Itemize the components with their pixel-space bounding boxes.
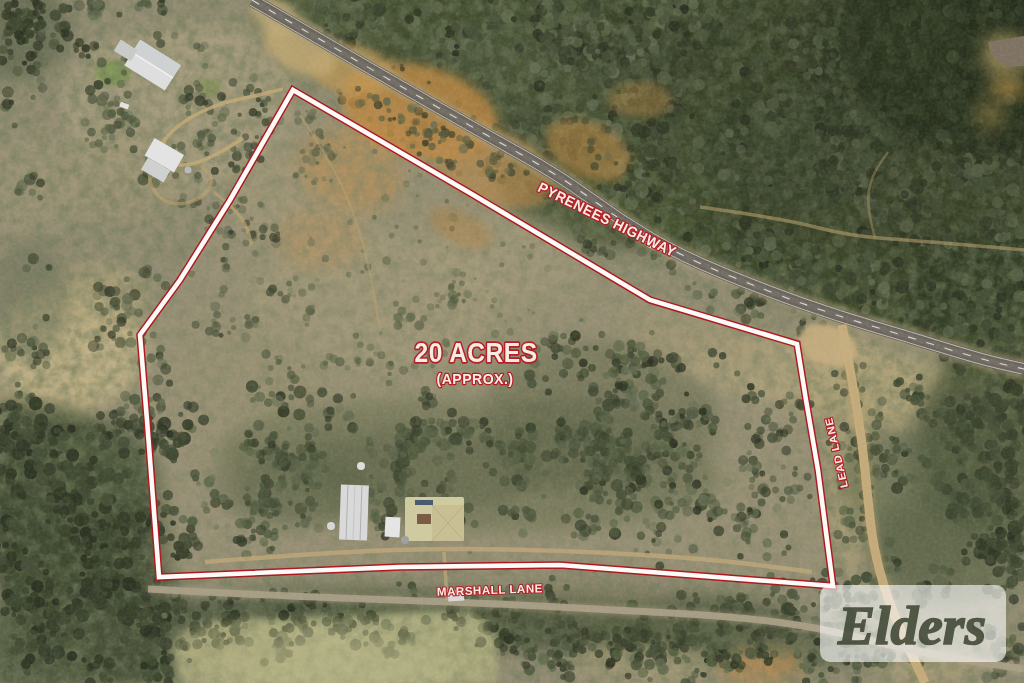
svg-text:Elders: Elders: [837, 595, 986, 656]
svg-text:(APPROX.): (APPROX.): [437, 370, 514, 387]
svg-text:20 ACRES: 20 ACRES: [415, 337, 538, 368]
